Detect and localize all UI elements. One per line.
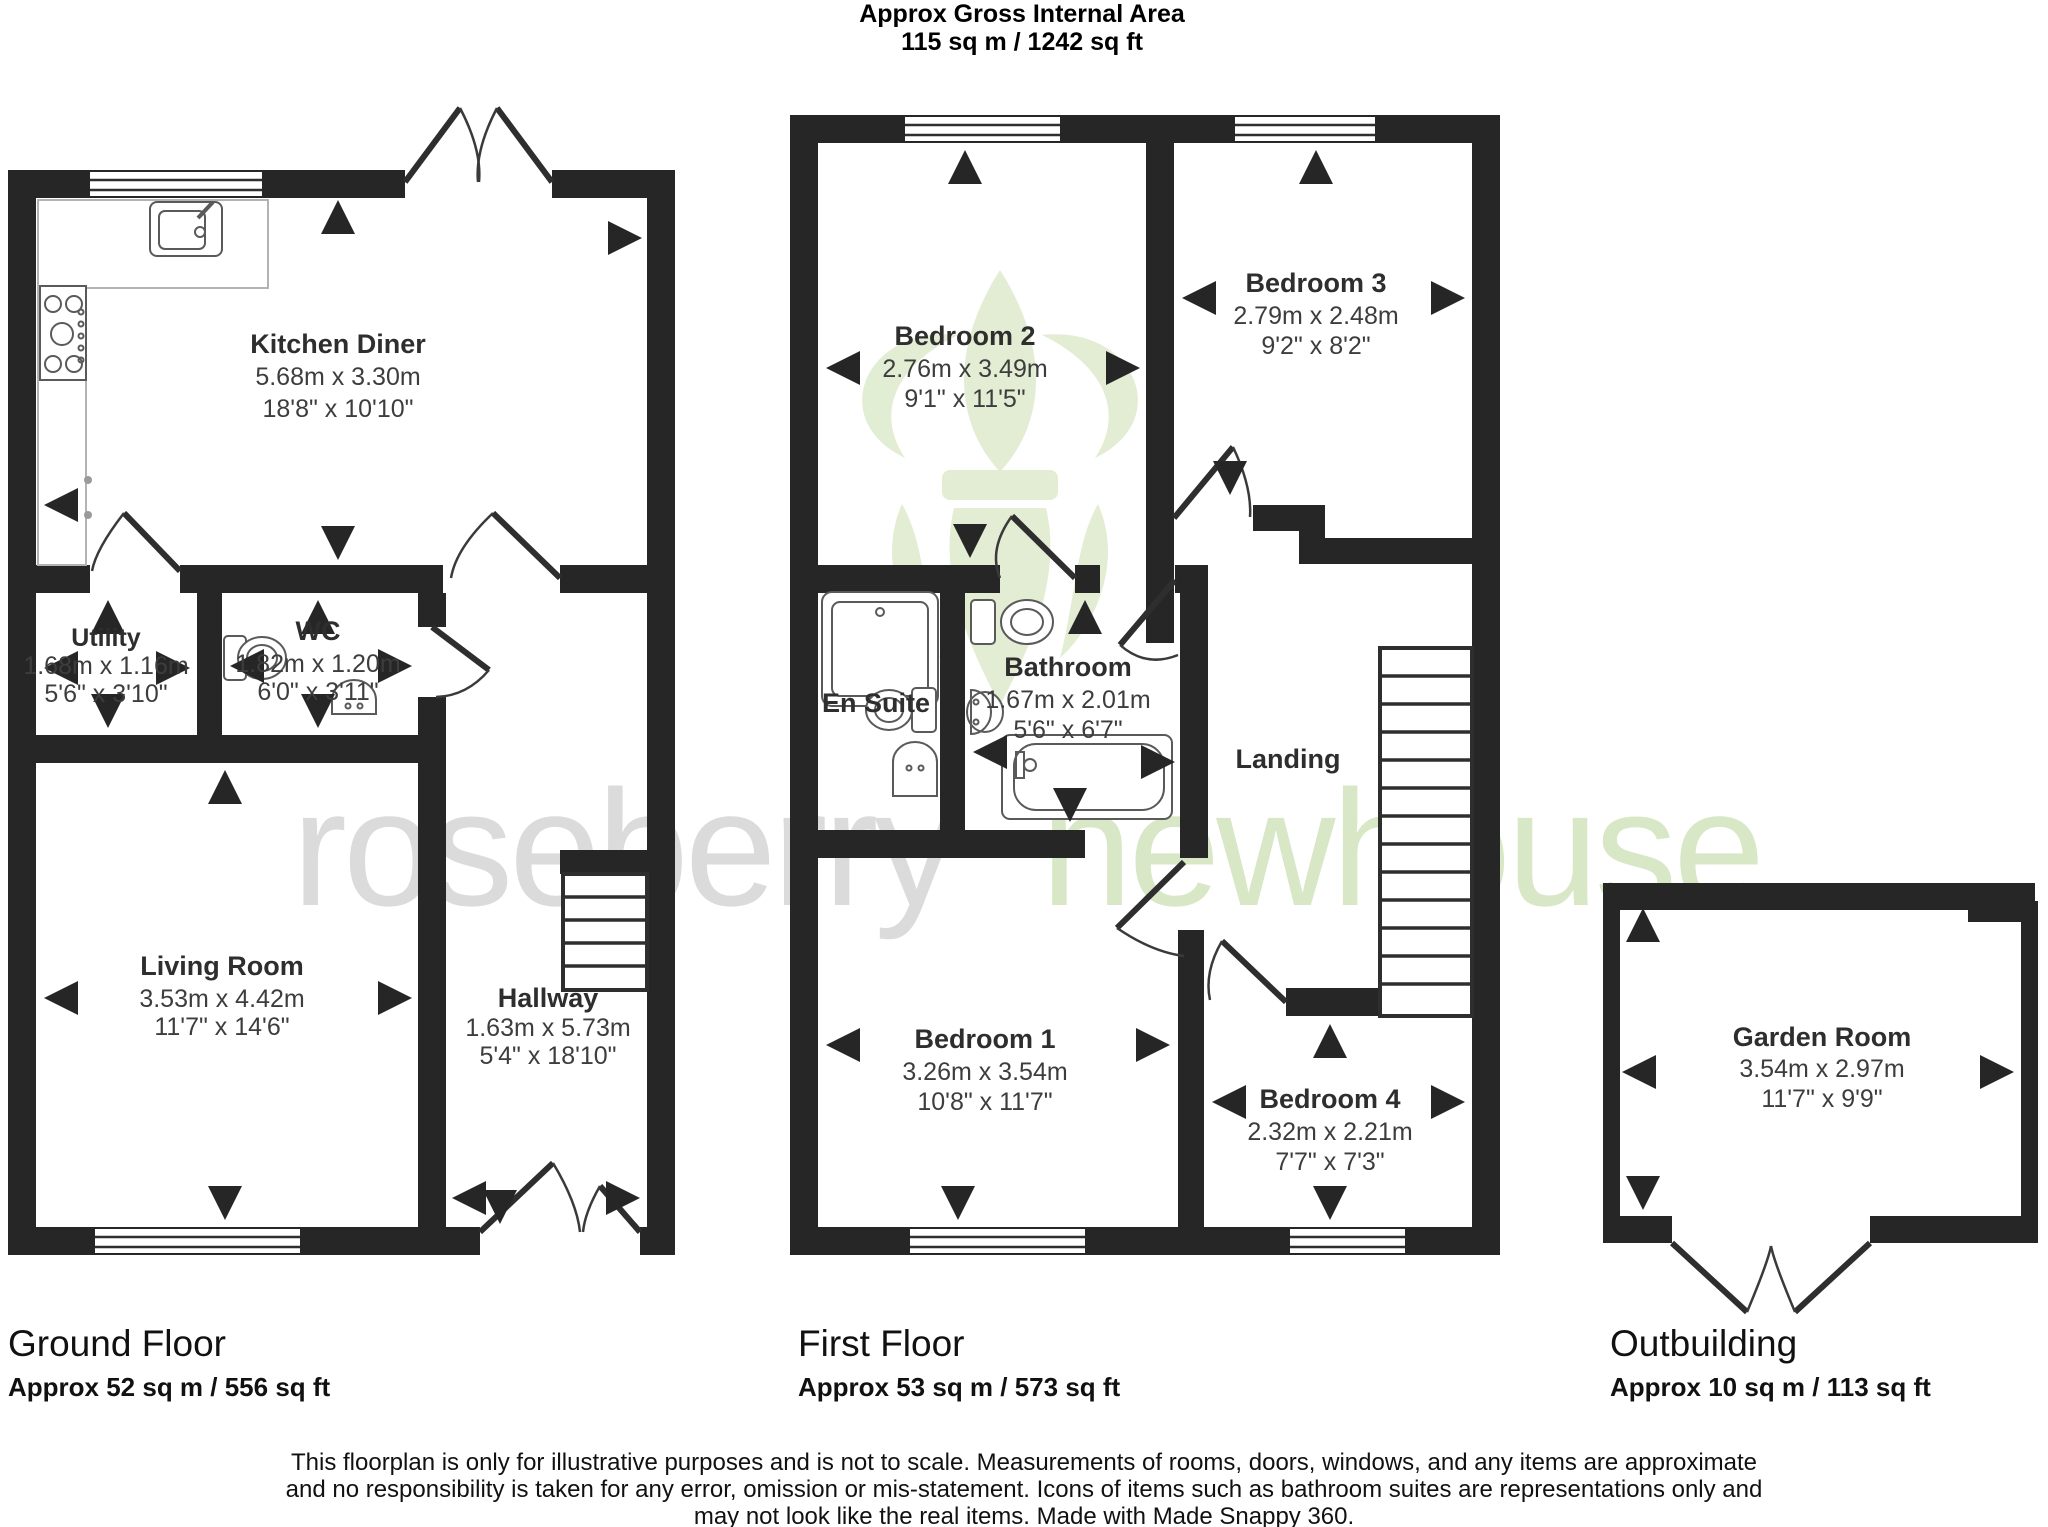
first-floor-area: Approx 53 sq m / 573 sq ft: [798, 1372, 1121, 1402]
room-dim-bedroom2-metric: 2.76m x 3.49m: [882, 355, 1047, 383]
room-dim-bedroom3-metric: 2.79m x 2.48m: [1233, 302, 1398, 330]
hob-icon: [40, 286, 86, 380]
room-label-bedroom2: Bedroom 2: [894, 321, 1035, 351]
page-title-line1: Approx Gross Internal Area: [859, 0, 1186, 28]
first-floor-stairs: [1380, 648, 1472, 1016]
room-dim-kitchen-metric: 5.68m x 3.30m: [255, 363, 420, 391]
disclaimer-line3: may not look like the real items. Made w…: [694, 1503, 1354, 1527]
outbuilding-area: Approx 10 sq m / 113 sq ft: [1610, 1372, 1931, 1402]
room-label-kitchen-diner: Kitchen Diner: [250, 329, 426, 359]
room-dim-garden-imperial: 11'7" x 9'9": [1761, 1085, 1882, 1113]
room-dim-utility-imperial: 5'6" x 3'10": [44, 680, 167, 708]
outbuilding-doors: [1672, 1243, 1870, 1312]
ground-floor-area: Approx 52 sq m / 556 sq ft: [8, 1372, 331, 1402]
room-label-bedroom1: Bedroom 1: [914, 1024, 1055, 1054]
ground-floor-stairs: [563, 874, 647, 990]
room-dim-garden-metric: 3.54m x 2.97m: [1739, 1055, 1904, 1083]
room-dim-bedroom1-imperial: 10'8" x 11'7": [917, 1088, 1052, 1116]
kitchen-sink-icon: [150, 202, 222, 256]
disclaimer-line1: This floorplan is only for illustrative …: [291, 1449, 1757, 1476]
ground-floor-label: Ground Floor: [8, 1323, 226, 1364]
outbuilding-label: Outbuilding: [1610, 1323, 1797, 1364]
room-label-bathroom: Bathroom: [1004, 652, 1132, 682]
room-dim-bedroom1-metric: 3.26m x 3.54m: [902, 1058, 1067, 1086]
room-dim-wc-imperial: 6'0" x 3'11": [257, 678, 378, 706]
room-dim-living-imperial: 11'7" x 14'6": [154, 1013, 289, 1041]
disclaimer-line2: and no responsibility is taken for any e…: [286, 1476, 1763, 1503]
room-dim-hallway-metric: 1.63m x 5.73m: [465, 1014, 630, 1042]
room-dim-bathroom-metric: 1.67m x 2.01m: [985, 686, 1150, 714]
room-label-bedroom4: Bedroom 4: [1259, 1084, 1400, 1114]
room-dim-hallway-imperial: 5'4" x 18'10": [479, 1042, 616, 1070]
first-floor-label: First Floor: [798, 1323, 965, 1364]
room-label-bedroom3: Bedroom 3: [1245, 268, 1386, 298]
room-dim-living-metric: 3.53m x 4.42m: [139, 985, 304, 1013]
room-dim-bedroom4-metric: 2.32m x 2.21m: [1247, 1118, 1412, 1146]
room-label-wc: WC: [296, 616, 341, 646]
bathtub-icon: [1002, 735, 1172, 819]
floorplan-canvas: roseberry newhouse Approx Gross Internal…: [0, 0, 2048, 1527]
room-dim-bedroom3-imperial: 9'2" x 8'2": [1261, 332, 1370, 360]
room-dim-utility-metric: 1.68m x 1.16m: [23, 652, 188, 680]
room-dim-kitchen-imperial: 18'8" x 10'10": [262, 395, 413, 423]
room-label-landing: Landing: [1236, 744, 1341, 774]
room-label-hallway: Hallway: [498, 983, 599, 1013]
page-title-line2: 115 sq m / 1242 sq ft: [901, 28, 1143, 56]
room-label-garden-room: Garden Room: [1733, 1022, 1912, 1052]
room-dim-wc-metric: 1.82m x 1.20m: [235, 650, 400, 678]
room-dim-bedroom2-imperial: 9'1" x 11'5": [904, 385, 1025, 413]
room-dim-bedroom4-imperial: 7'7" x 7'3": [1275, 1148, 1384, 1176]
room-label-living-room: Living Room: [140, 951, 304, 981]
ensuite-basin-icon: [893, 742, 937, 796]
bathroom-toilet-icon: [971, 600, 1053, 644]
disclaimer: This floorplan is only for illustrative …: [286, 1449, 1763, 1527]
room-label-ensuite: En Suite: [822, 688, 930, 718]
floorplan-page: roseberry newhouse Approx Gross Internal…: [0, 0, 2048, 1527]
floor-titles: Ground Floor Approx 52 sq m / 556 sq ft …: [8, 1323, 1931, 1402]
room-label-utility: Utility: [71, 624, 141, 652]
room-dim-bathroom-imperial: 5'6" x 6'7": [1013, 716, 1122, 744]
room-labels: Kitchen Diner 5.68m x 3.30m 18'8" x 10'1…: [23, 268, 1911, 1176]
